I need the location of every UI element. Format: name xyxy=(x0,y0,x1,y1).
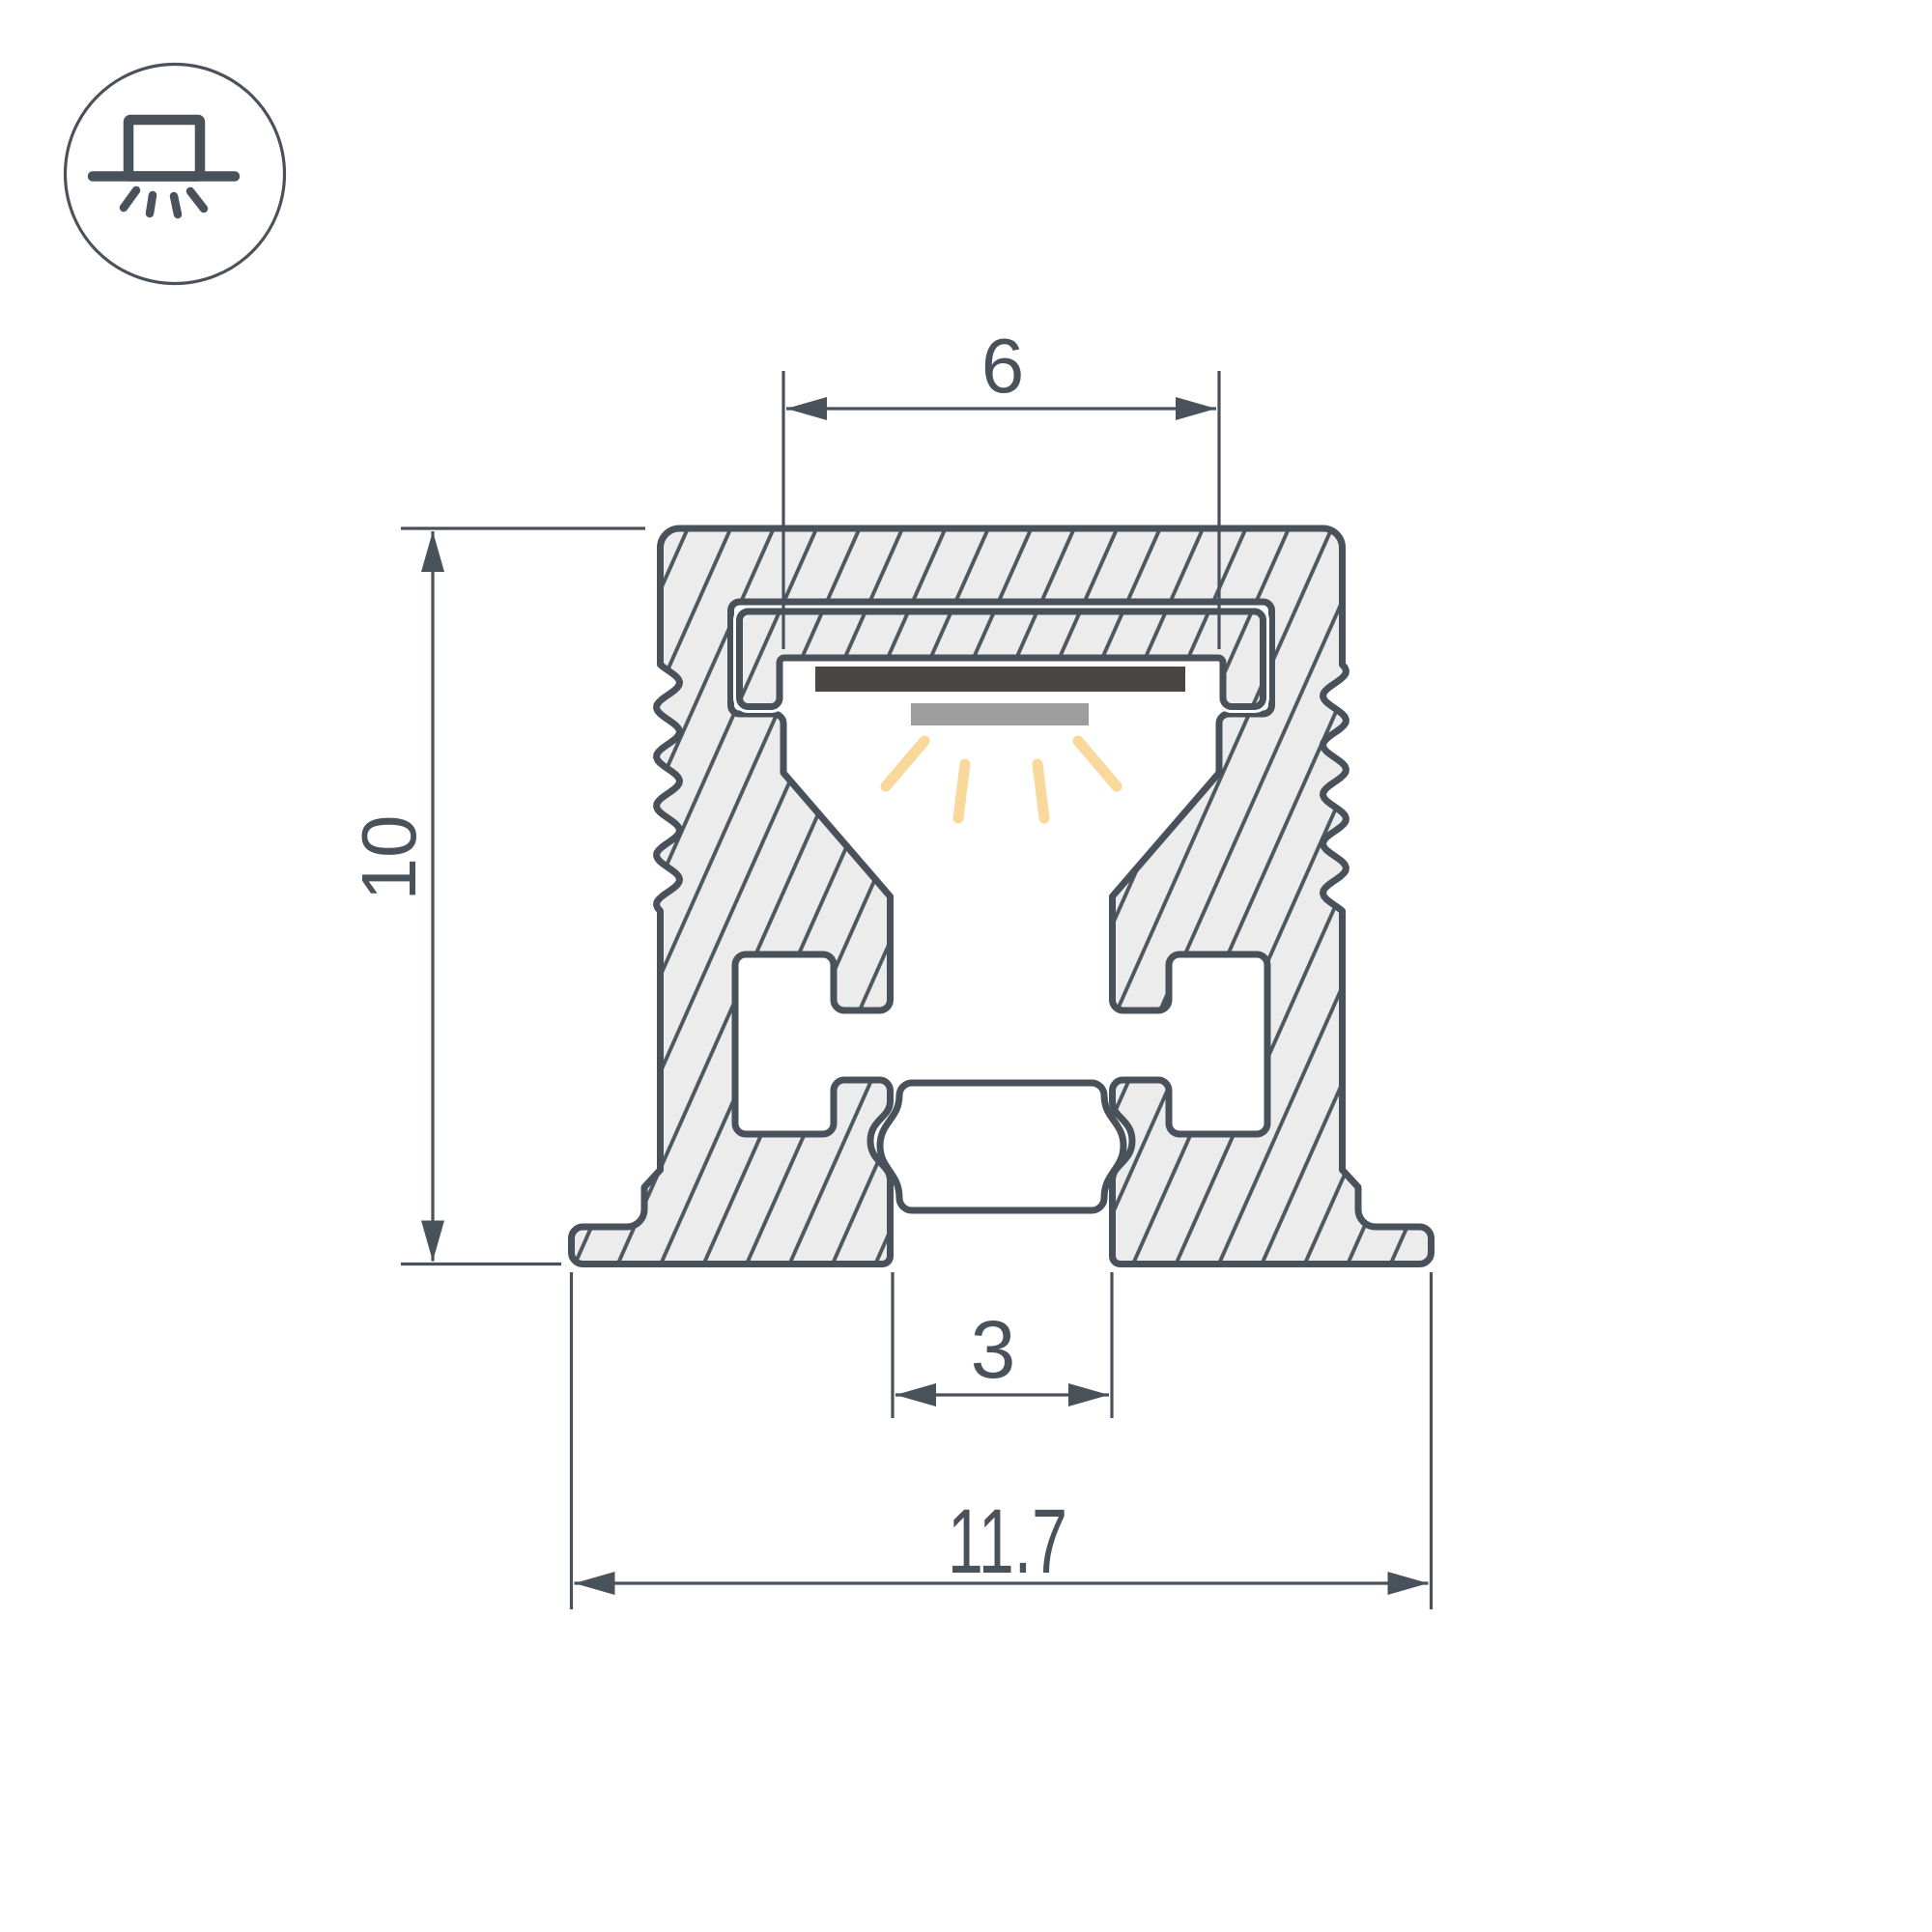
svg-text:3: 3 xyxy=(971,1304,1016,1395)
svg-text:10: 10 xyxy=(346,815,432,901)
svg-text:11.7: 11.7 xyxy=(948,1491,1067,1593)
svg-text:6: 6 xyxy=(981,323,1025,409)
